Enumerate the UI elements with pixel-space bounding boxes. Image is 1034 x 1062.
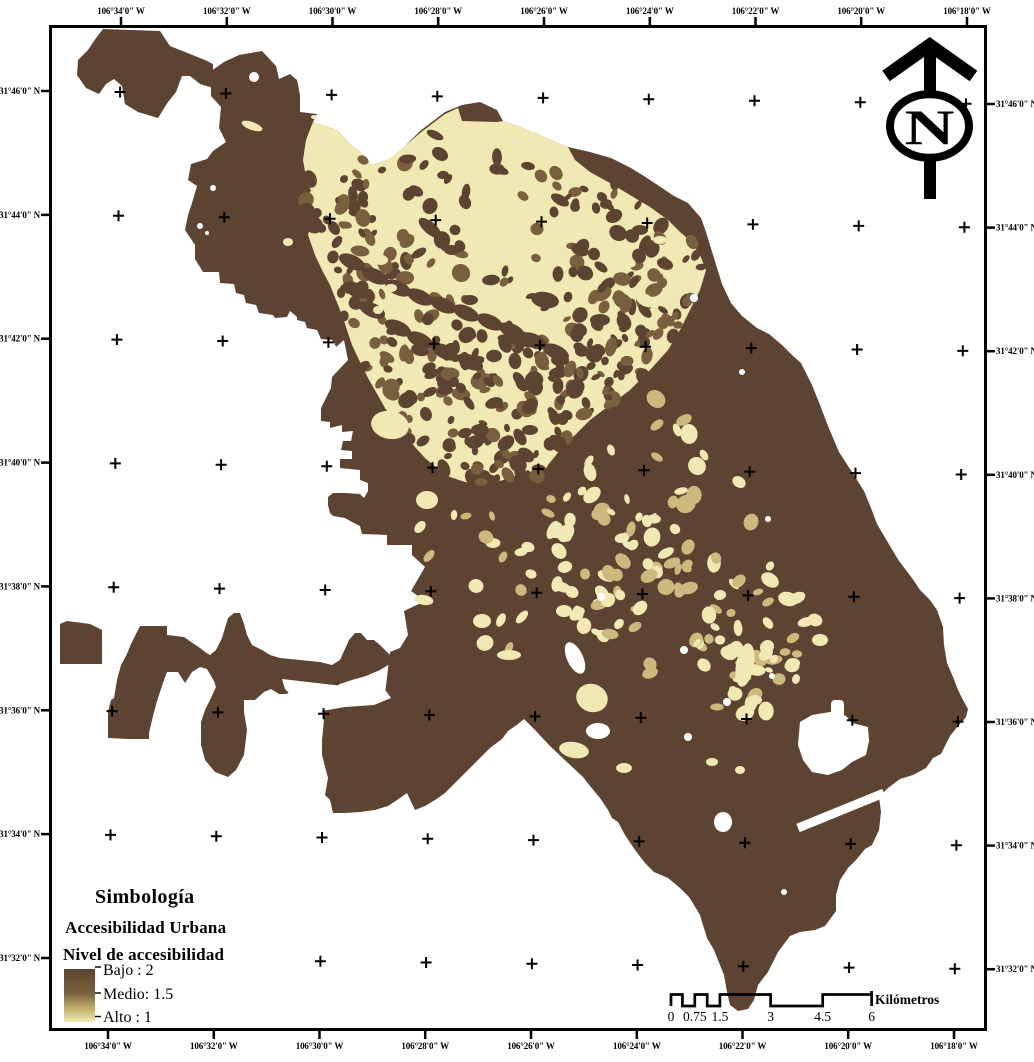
- svg-text:Accesibilidad Urbana: Accesibilidad Urbana: [65, 918, 227, 937]
- svg-text:106°26'0" W: 106°26'0" W: [520, 6, 568, 16]
- svg-text:106°24'0" W: 106°24'0" W: [626, 6, 674, 16]
- svg-text:31°46'0" N: 31°46'0" N: [0, 86, 41, 96]
- svg-text:31°46'0" N: 31°46'0" N: [996, 99, 1034, 109]
- svg-text:N: N: [905, 99, 955, 155]
- svg-text:31°42'0" N: 31°42'0" N: [996, 346, 1034, 356]
- svg-text:31°40'0" N: 31°40'0" N: [0, 458, 41, 468]
- svg-text:106°18'0" W: 106°18'0" W: [943, 6, 991, 16]
- svg-text:0.75: 0.75: [683, 1009, 707, 1024]
- svg-text:4.5: 4.5: [814, 1009, 831, 1024]
- svg-text:31°42'0" N: 31°42'0" N: [0, 334, 41, 344]
- svg-text:31°38'0" N: 31°38'0" N: [996, 593, 1034, 603]
- svg-text:106°28'0" W: 106°28'0" W: [414, 6, 462, 16]
- svg-text:31°34'0" N: 31°34'0" N: [0, 829, 41, 839]
- svg-text:31°32'0" N: 31°32'0" N: [0, 953, 41, 963]
- svg-text:31°44'0" N: 31°44'0" N: [996, 223, 1034, 233]
- svg-text:106°30'0" W: 106°30'0" W: [309, 6, 357, 16]
- svg-text:31°36'0" N: 31°36'0" N: [996, 717, 1034, 727]
- svg-text:106°34'0" W: 106°34'0" W: [97, 6, 145, 16]
- svg-text:0: 0: [668, 1009, 675, 1024]
- svg-text:31°34'0" N: 31°34'0" N: [996, 841, 1034, 851]
- svg-text:31°44'0" N: 31°44'0" N: [0, 210, 41, 220]
- svg-text:106°22'0" W: 106°22'0" W: [719, 1041, 767, 1051]
- svg-text:106°20'0" W: 106°20'0" W: [837, 6, 885, 16]
- svg-text:3: 3: [767, 1009, 774, 1024]
- svg-text:106°26'0" W: 106°26'0" W: [507, 1041, 555, 1051]
- svg-text:106°32'0" W: 106°32'0" W: [190, 1041, 238, 1051]
- svg-text:Medio: 1.5: Medio: 1.5: [103, 986, 173, 1003]
- svg-text:106°18'0" W: 106°18'0" W: [930, 1041, 978, 1051]
- svg-text:106°32'0" W: 106°32'0" W: [203, 6, 251, 16]
- svg-text:31°36'0" N: 31°36'0" N: [0, 705, 41, 715]
- svg-text:106°22'0" W: 106°22'0" W: [732, 6, 780, 16]
- svg-text:31°40'0" N: 31°40'0" N: [996, 470, 1034, 480]
- svg-text:106°24'0" W: 106°24'0" W: [613, 1041, 661, 1051]
- svg-text:Simbología: Simbología: [95, 886, 195, 908]
- svg-text:106°34'0" W: 106°34'0" W: [84, 1041, 132, 1051]
- svg-text:1.5: 1.5: [711, 1009, 728, 1024]
- svg-text:106°28'0" W: 106°28'0" W: [401, 1041, 449, 1051]
- svg-text:31°32'0" N: 31°32'0" N: [996, 964, 1034, 974]
- svg-text:6: 6: [868, 1009, 875, 1024]
- svg-text:Alto : 1: Alto : 1: [103, 1009, 152, 1026]
- svg-text:Kilómetros: Kilómetros: [875, 992, 939, 1007]
- svg-text:Bajo : 2: Bajo : 2: [103, 962, 154, 979]
- svg-text:106°20'0" W: 106°20'0" W: [824, 1041, 872, 1051]
- svg-text:31°38'0" N: 31°38'0" N: [0, 581, 41, 591]
- svg-text:106°30'0" W: 106°30'0" W: [296, 1041, 344, 1051]
